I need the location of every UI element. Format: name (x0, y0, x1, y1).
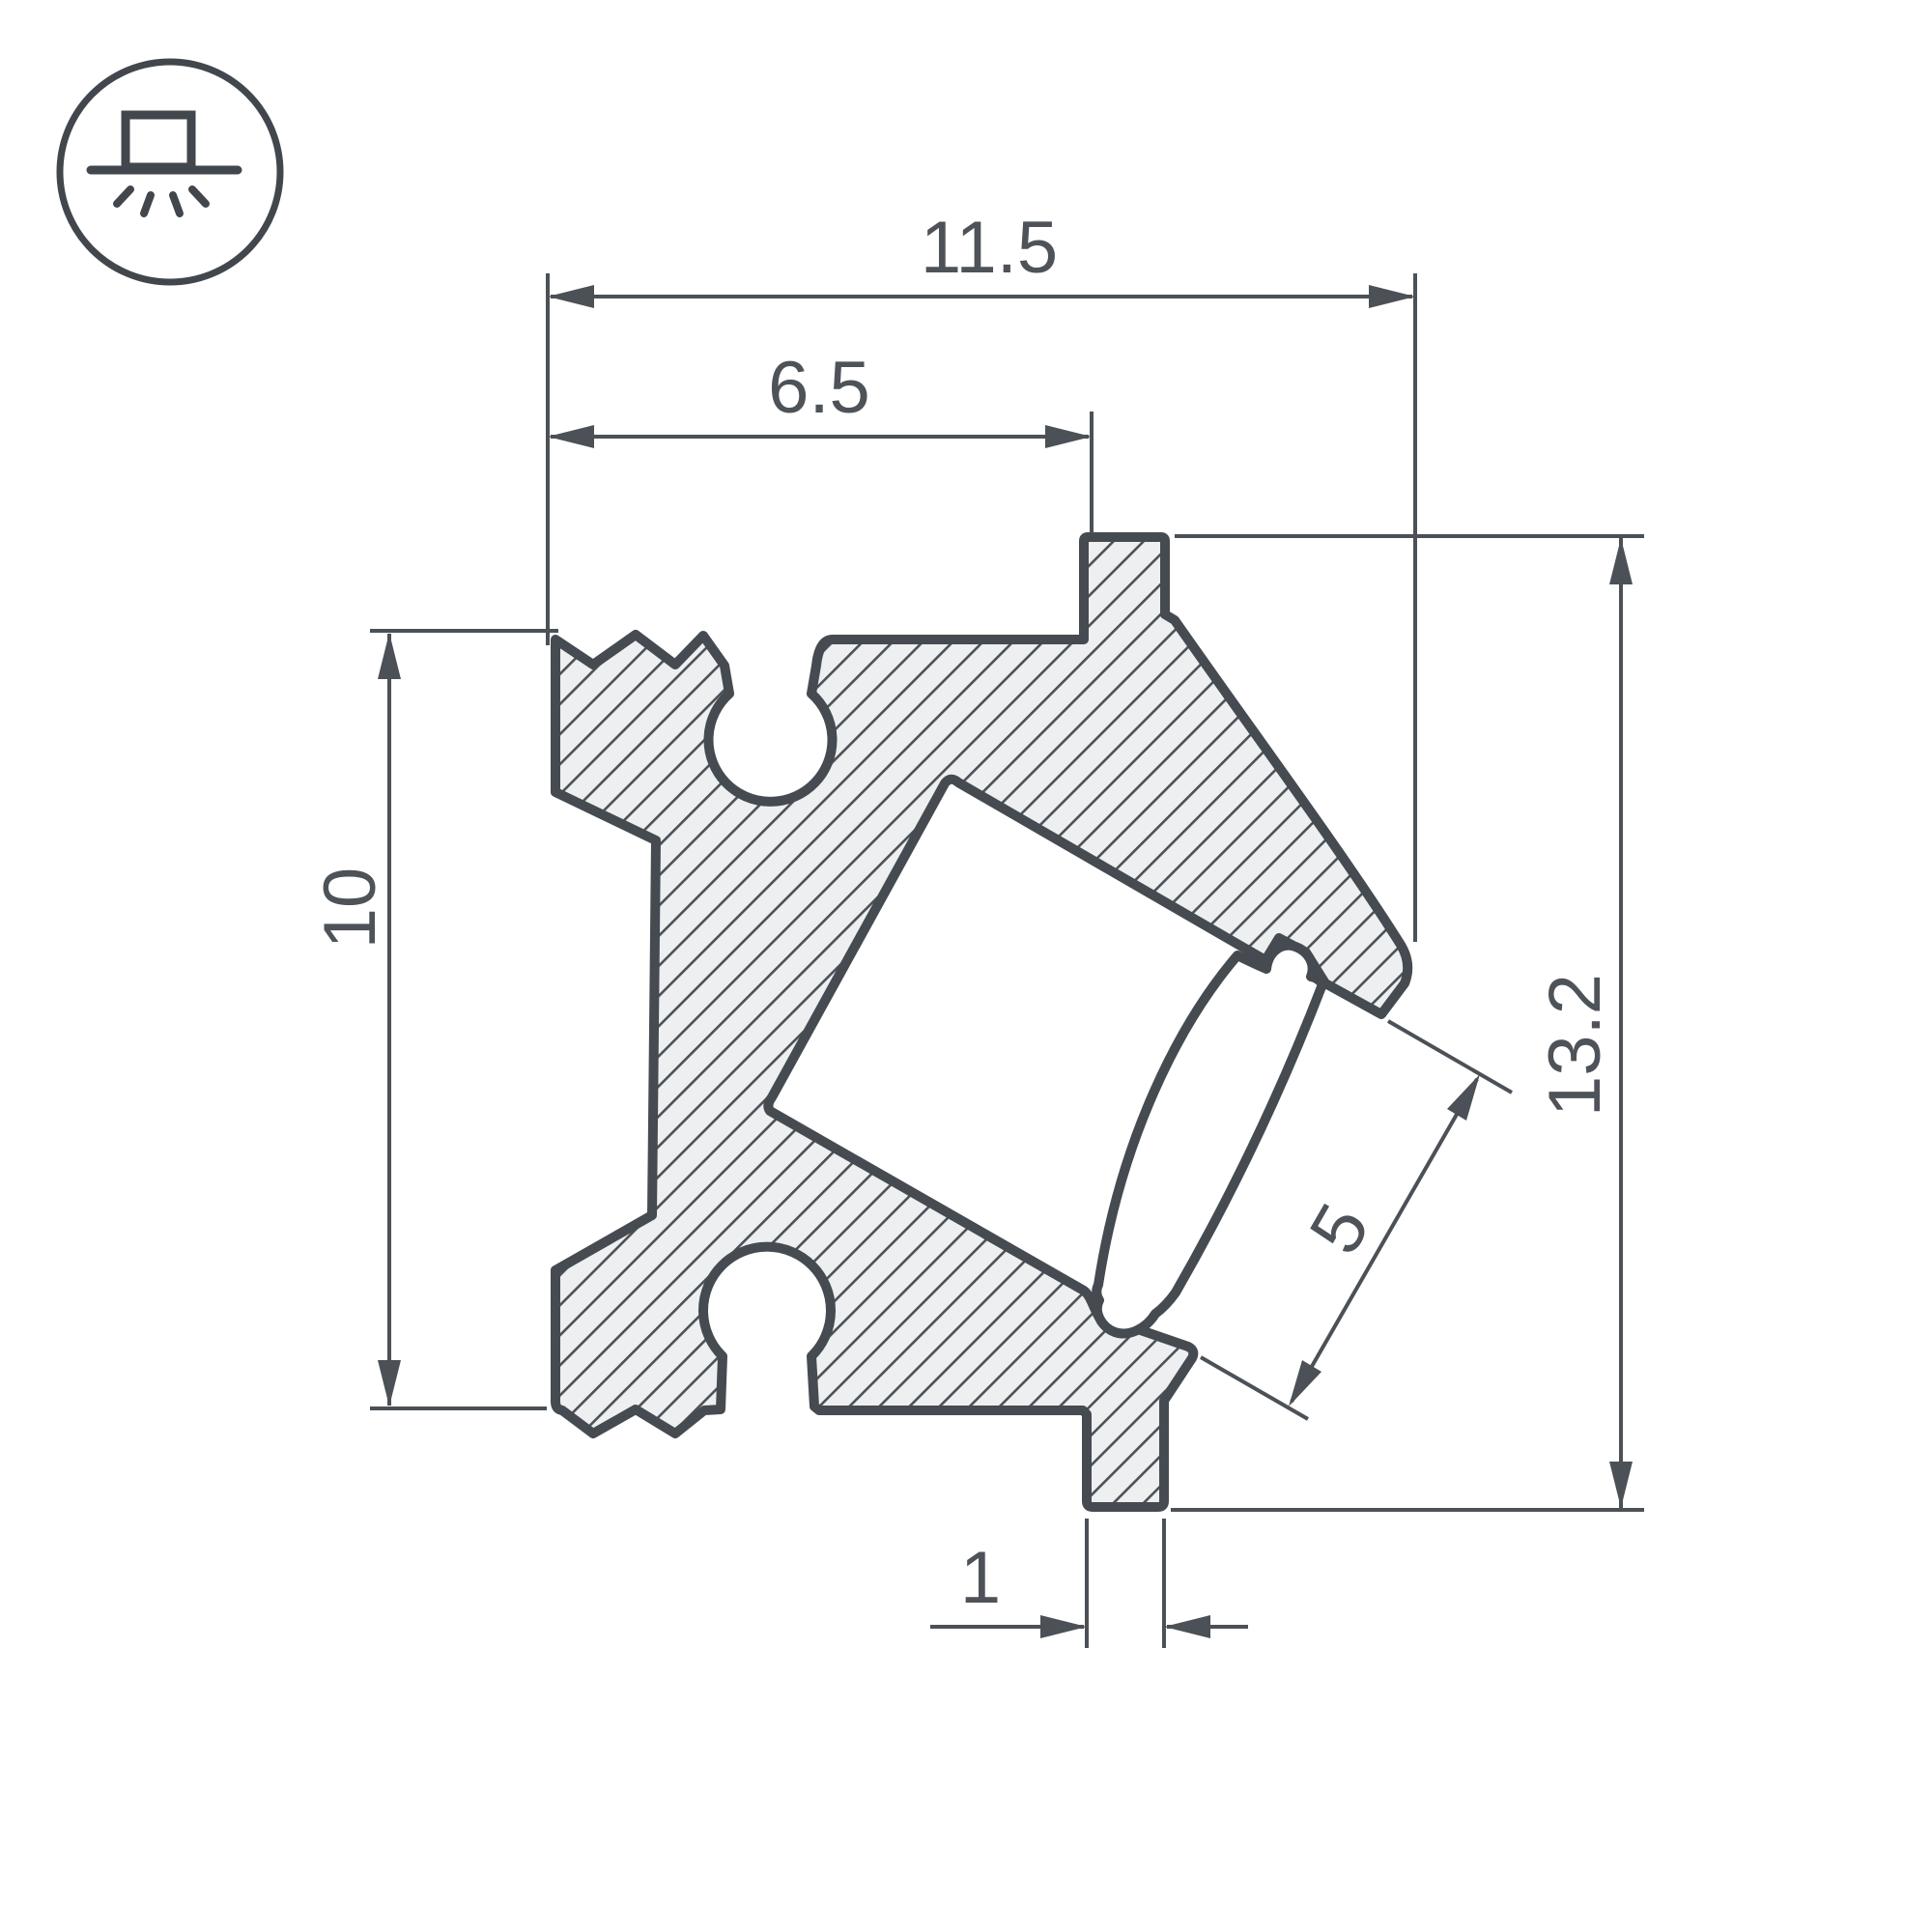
led-lens (1096, 946, 1322, 1334)
dim-foot-width: 1 (930, 1519, 1248, 1648)
dim-foot-width-label: 1 (960, 1537, 1001, 1619)
arrow-lower-icon (1289, 1360, 1321, 1406)
arrow-right-icon (1040, 1615, 1087, 1638)
dim-top-inner-width: 6.5 (548, 347, 1092, 533)
drawing-canvas: 11.5 6.5 10 13.2 5 (0, 0, 1932, 1932)
dim-right-height-label: 13.2 (1534, 974, 1616, 1117)
technical-drawing-sheet: 11.5 6.5 10 13.2 5 (0, 0, 1932, 1932)
arrow-right-icon (1045, 425, 1092, 448)
extension-line (1201, 1357, 1308, 1419)
arrow-up-icon (378, 633, 401, 679)
arrow-down-icon (378, 1360, 401, 1406)
arrow-left-icon (548, 285, 594, 308)
surface-mount-light-icon (60, 62, 280, 282)
dim-left-height: 10 (309, 631, 558, 1408)
icon-fixture (126, 115, 191, 167)
dim-left-height-label: 10 (309, 867, 391, 950)
arrow-right-icon (1369, 285, 1415, 308)
arrow-up-icon (1609, 538, 1633, 584)
dim-overall-width-label: 11.5 (921, 207, 1058, 289)
extension-line (1388, 1021, 1512, 1093)
arrow-left-icon (548, 425, 594, 448)
dim-top-inner-width-label: 6.5 (768, 347, 870, 429)
dim-led-opening-label: 5 (1294, 1191, 1386, 1267)
icon-light-rays (117, 189, 206, 213)
arrow-left-icon (1164, 1615, 1210, 1638)
arrow-down-icon (1609, 1462, 1633, 1508)
arrow-upper-icon (1447, 1074, 1480, 1121)
profile-cross-section (555, 537, 1407, 1507)
